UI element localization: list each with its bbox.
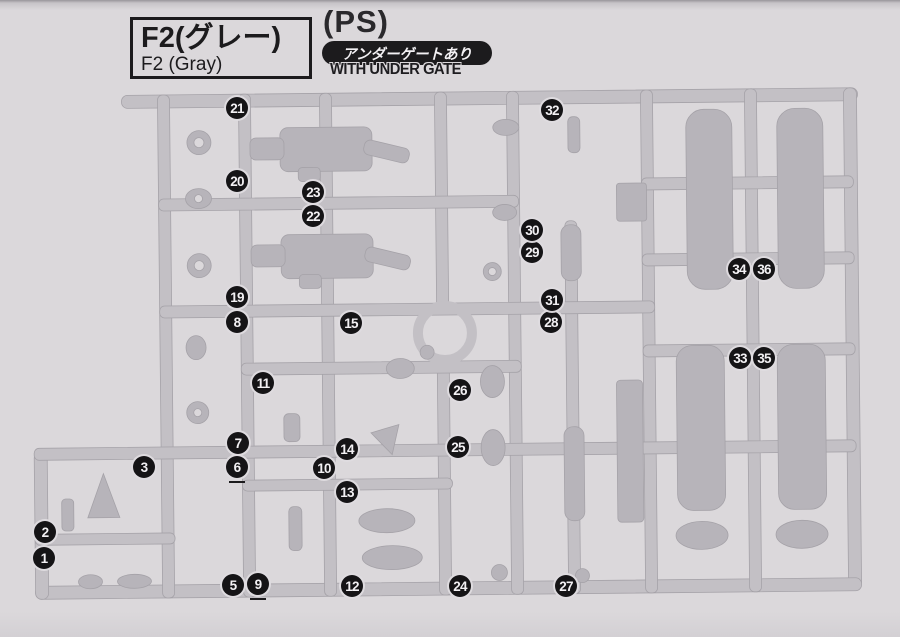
part-callout-28: 28 [540,311,562,333]
part-callout-15: 15 [340,312,362,334]
part-callout-31: 31 [541,289,563,311]
part-callout-10: 10 [313,457,335,479]
part-callout-11: 11 [252,372,274,394]
part-callout-35: 35 [753,347,775,369]
part-callout-3: 3 [133,456,155,478]
part-callout-6: 6 [226,456,248,478]
part-callout-30: 30 [521,219,543,241]
part-callout-27: 27 [555,575,577,597]
part-callout-21: 21 [226,97,248,119]
part-callout-33: 33 [729,347,751,369]
part-callout-1: 1 [33,547,55,569]
part-callout-22: 22 [302,205,324,227]
part-callout-32: 32 [541,99,563,121]
part-callout-5: 5 [222,574,244,596]
part-callout-24: 24 [449,575,471,597]
runner-illustration [0,0,900,637]
part-callout-14: 14 [336,438,358,460]
part-callout-9: 9 [247,573,269,595]
part-callout-36: 36 [753,258,775,280]
part-callout-7: 7 [227,432,249,454]
part-callout-19: 19 [226,286,248,308]
part-callout-2: 2 [34,521,56,543]
part-callout-12: 12 [341,575,363,597]
part-callout-25: 25 [447,436,469,458]
instruction-sheet-scan: F2(グレー) F2 (Gray) (PS) アンダーゲートあり WITH UN… [0,0,900,637]
part-callout-29: 29 [521,241,543,263]
runner-frame [30,88,862,600]
part-callout-20: 20 [226,170,248,192]
part-callout-13: 13 [336,481,358,503]
part-callout-34: 34 [728,258,750,280]
part-callout-8: 8 [226,311,248,333]
part-callout-26: 26 [449,379,471,401]
part-callout-23: 23 [302,181,324,203]
